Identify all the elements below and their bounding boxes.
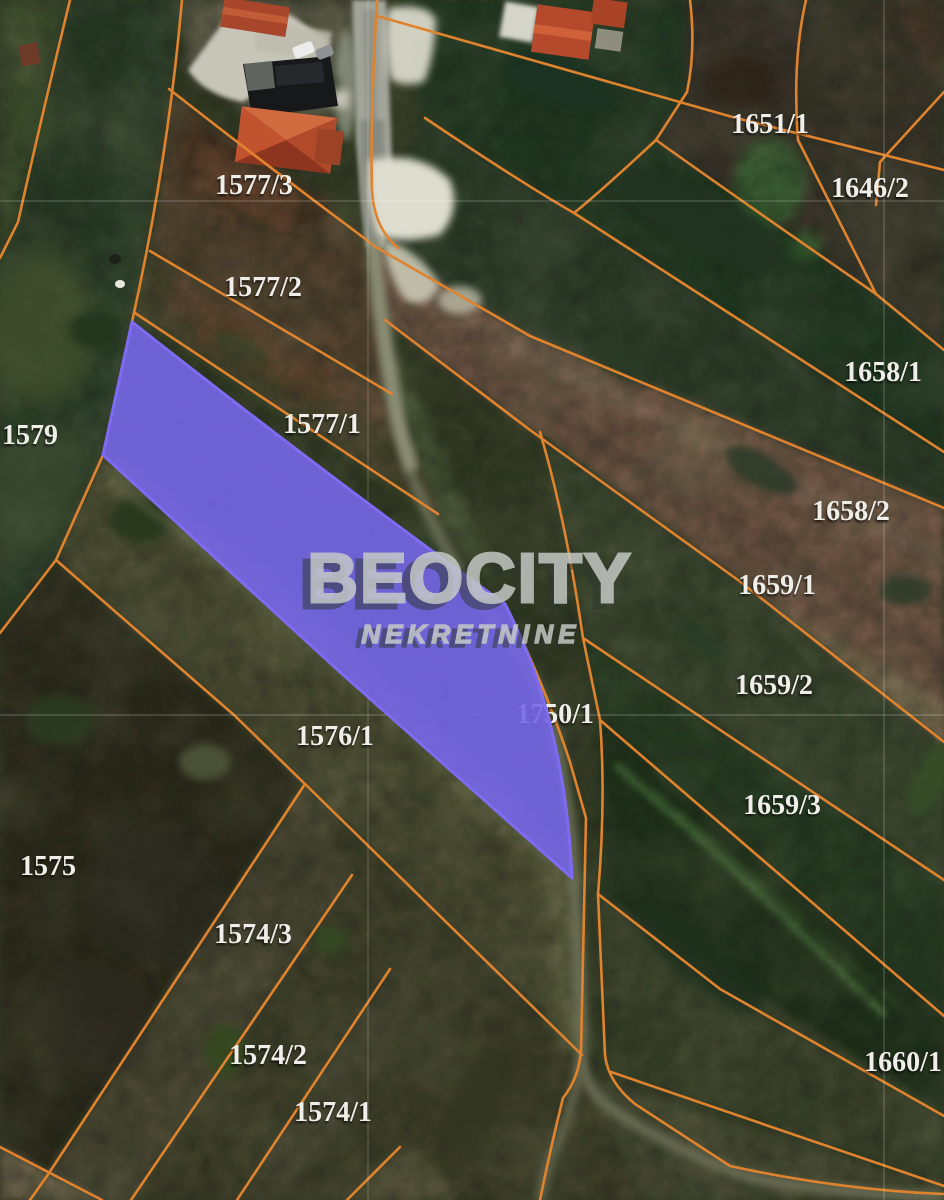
svg-text:1659/3: 1659/3: [743, 790, 821, 821]
svg-text:1659/1: 1659/1: [738, 570, 816, 601]
svg-text:1660/1: 1660/1: [864, 1047, 942, 1078]
svg-text:1574/3: 1574/3: [214, 919, 292, 950]
svg-text:1575: 1575: [20, 851, 76, 882]
svg-text:1651/1: 1651/1: [731, 109, 809, 140]
svg-text:BEOCITY: BEOCITY: [307, 539, 632, 617]
svg-text:1646/2: 1646/2: [831, 173, 909, 204]
svg-text:NEKRETNINE: NEKRETNINE: [361, 619, 580, 649]
svg-text:1658/2: 1658/2: [812, 496, 890, 527]
svg-text:1577/1: 1577/1: [283, 409, 361, 440]
svg-text:1576/1: 1576/1: [296, 721, 374, 752]
svg-text:1577/2: 1577/2: [224, 272, 302, 303]
svg-text:1658/1: 1658/1: [844, 357, 922, 388]
svg-text:1577/3: 1577/3: [215, 170, 293, 201]
svg-text:1659/2: 1659/2: [735, 670, 813, 701]
svg-text:1574/2: 1574/2: [229, 1040, 307, 1071]
svg-text:1574/1: 1574/1: [294, 1097, 372, 1128]
svg-text:1579: 1579: [2, 420, 58, 451]
